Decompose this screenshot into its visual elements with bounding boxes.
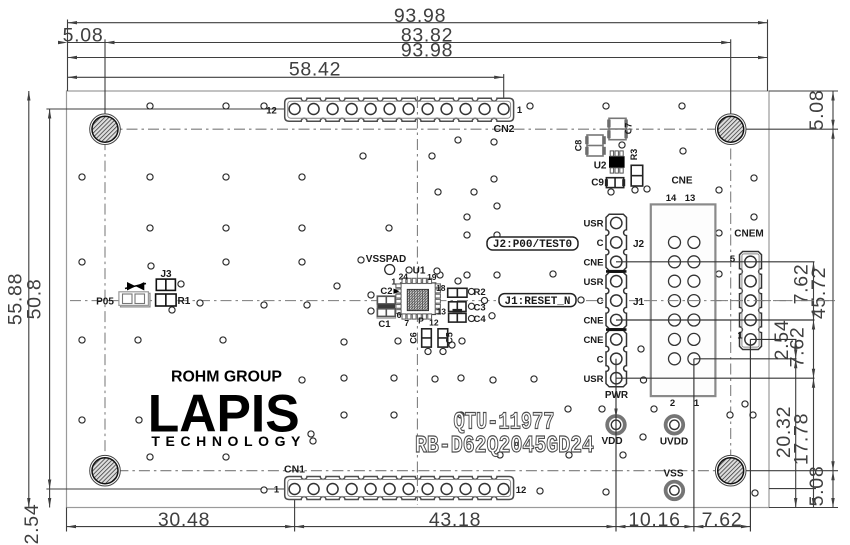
svg-text:CNE: CNE: [583, 335, 603, 346]
svg-text:5.08: 5.08: [806, 90, 828, 131]
svg-text:13: 13: [437, 307, 447, 317]
svg-text:J1: J1: [633, 297, 645, 308]
svg-text:C: C: [597, 354, 604, 365]
svg-text:R3: R3: [629, 149, 639, 161]
svg-text:C: C: [597, 238, 604, 249]
svg-text:R1: R1: [178, 296, 191, 307]
svg-text:C2: C2: [380, 286, 392, 297]
svg-text:1: 1: [274, 485, 280, 496]
svg-text:UVDD: UVDD: [660, 436, 688, 447]
svg-text:2.54: 2.54: [21, 504, 43, 545]
svg-text:93.98: 93.98: [401, 40, 453, 62]
svg-text:CNEM: CNEM: [734, 229, 763, 240]
svg-text:J1:RESET_N: J1:RESET_N: [504, 296, 570, 308]
svg-text:1: 1: [391, 277, 396, 287]
svg-text:CNE: CNE: [671, 176, 692, 187]
svg-text:USR: USR: [583, 374, 603, 385]
svg-text:P05: P05: [96, 296, 114, 307]
svg-text:C8: C8: [574, 140, 584, 152]
svg-text:6: 6: [397, 310, 402, 320]
svg-text:13: 13: [685, 193, 696, 204]
svg-text:30.48: 30.48: [158, 509, 210, 531]
svg-text:C5: C5: [445, 332, 455, 344]
svg-text:18: 18: [436, 283, 446, 293]
svg-text:C4: C4: [474, 314, 487, 325]
svg-text:VSSPAD: VSSPAD: [366, 254, 406, 265]
svg-text:U2: U2: [594, 161, 607, 172]
svg-text:VDD: VDD: [601, 436, 622, 447]
svg-text:7.62: 7.62: [702, 509, 743, 531]
svg-text:2.54: 2.54: [771, 320, 793, 361]
svg-text:12: 12: [266, 106, 277, 117]
svg-text:5.08: 5.08: [806, 466, 828, 507]
svg-text:43.18: 43.18: [429, 509, 481, 531]
svg-text:10.16: 10.16: [628, 509, 680, 531]
svg-text:USR: USR: [583, 219, 603, 230]
svg-text:C7: C7: [624, 123, 634, 135]
svg-text:1: 1: [737, 331, 743, 342]
svg-text:CN2: CN2: [493, 123, 514, 135]
svg-text:C1: C1: [378, 319, 391, 330]
svg-text:19: 19: [427, 272, 437, 282]
svg-text:CNE: CNE: [583, 257, 603, 268]
svg-text:VSS: VSS: [663, 468, 683, 479]
svg-text:5.08: 5.08: [63, 25, 104, 47]
svg-text:CN1: CN1: [284, 463, 305, 475]
svg-text:CNE: CNE: [583, 316, 603, 327]
svg-text:C: C: [597, 296, 604, 307]
svg-text:C9: C9: [591, 178, 604, 189]
svg-text:RB-D62Q2045GD24: RB-D62Q2045GD24: [415, 433, 594, 460]
svg-text:C3: C3: [474, 302, 486, 313]
svg-text:C6: C6: [409, 332, 419, 344]
svg-text:1: 1: [694, 398, 700, 409]
svg-text:17.78: 17.78: [791, 413, 813, 465]
svg-text:ROHM GROUP: ROHM GROUP: [171, 368, 282, 385]
svg-text:7.62: 7.62: [791, 264, 813, 305]
svg-text:50.8: 50.8: [24, 279, 46, 320]
svg-text:USR: USR: [583, 277, 603, 288]
svg-text:58.42: 58.42: [289, 59, 341, 81]
svg-text:PWR: PWR: [605, 390, 629, 401]
svg-text:J2:P00/TEST0: J2:P00/TEST0: [493, 239, 572, 251]
svg-text:14: 14: [666, 193, 677, 204]
svg-text:U1: U1: [413, 266, 426, 277]
svg-text:1: 1: [517, 105, 523, 116]
svg-text:J2: J2: [633, 239, 645, 250]
svg-text:R2: R2: [474, 287, 486, 298]
svg-text:12: 12: [516, 485, 527, 496]
svg-text:24: 24: [399, 272, 409, 282]
svg-text:5: 5: [730, 254, 736, 265]
svg-text:J3: J3: [160, 269, 172, 280]
svg-text:7: 7: [404, 318, 409, 328]
svg-text:12: 12: [429, 318, 439, 328]
svg-text:P: P: [418, 316, 424, 326]
svg-text:2: 2: [670, 398, 675, 409]
